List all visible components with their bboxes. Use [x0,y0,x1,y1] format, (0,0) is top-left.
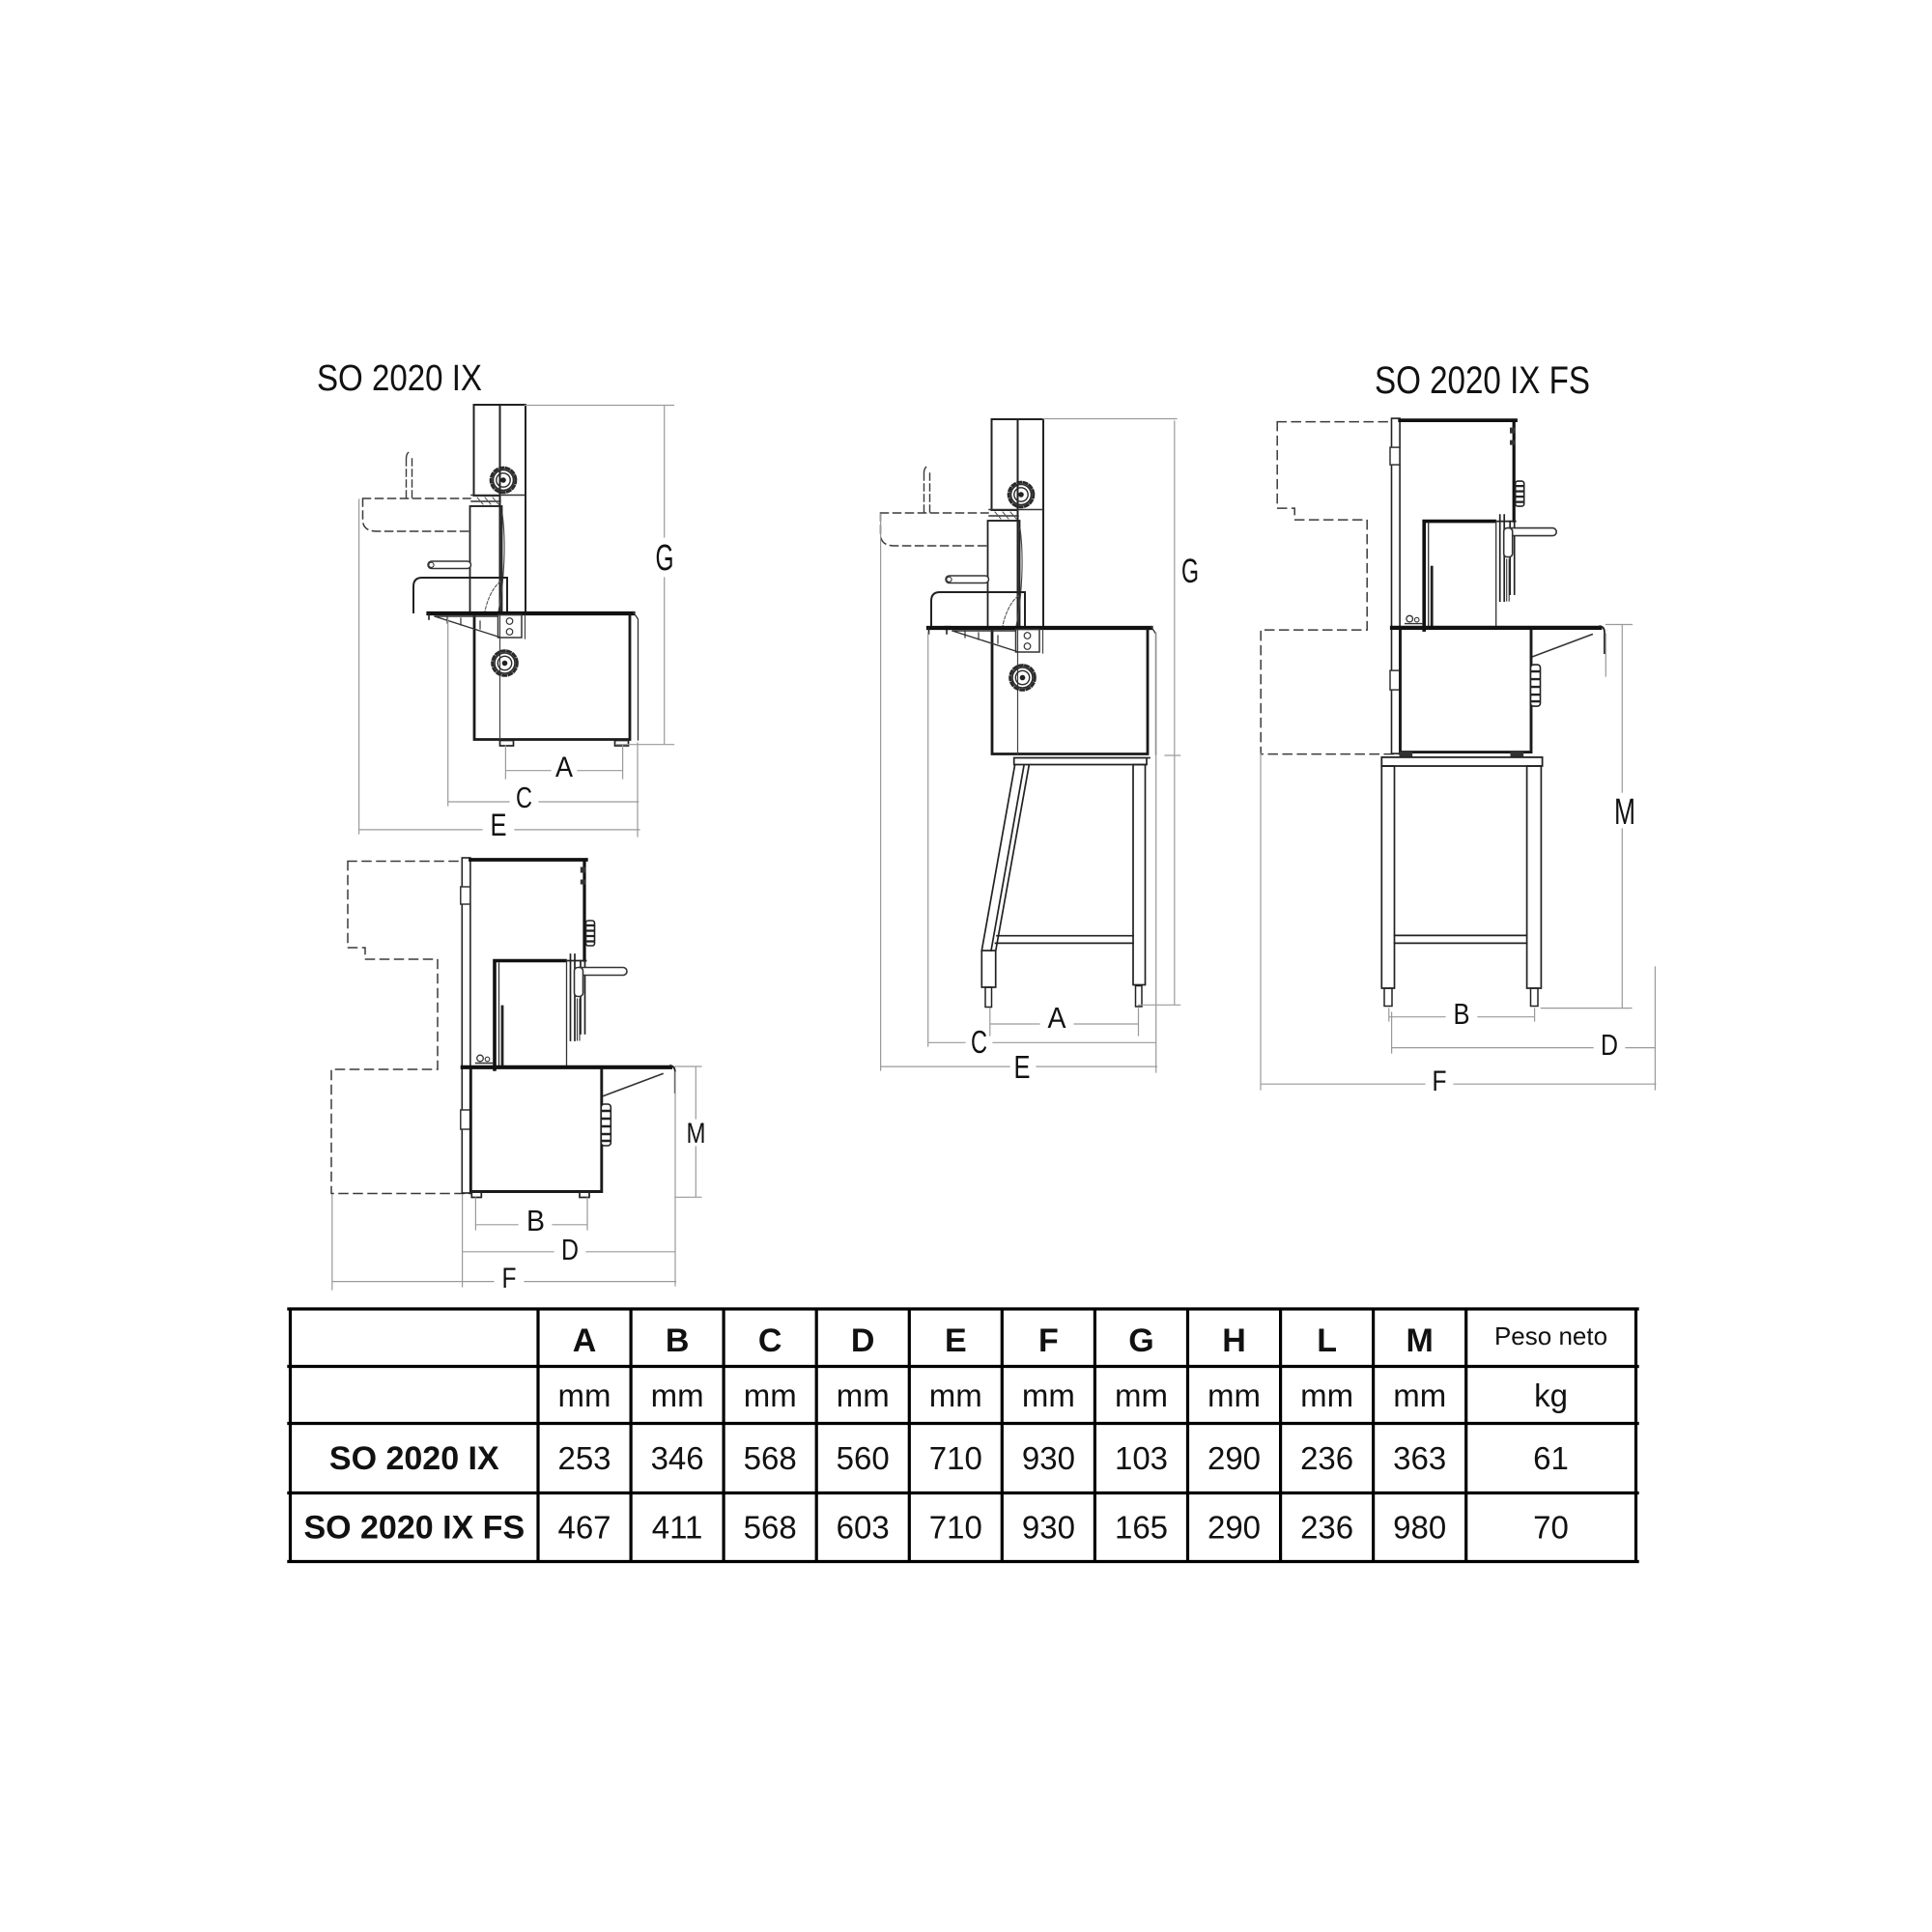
svg-text:70: 70 [1533,1510,1569,1546]
svg-text:SO 2020 IX: SO 2020 IX [317,358,482,399]
svg-text:mm: mm [1115,1378,1168,1413]
svg-text:568: 568 [744,1510,797,1546]
svg-text:560: 560 [837,1440,890,1476]
svg-text:236: 236 [1300,1510,1353,1546]
svg-text:103: 103 [1115,1440,1168,1476]
svg-text:930: 930 [1022,1510,1075,1546]
svg-text:mm: mm [1393,1378,1446,1413]
svg-text:mm: mm [1022,1378,1075,1413]
svg-text:603: 603 [837,1510,890,1546]
svg-text:363: 363 [1393,1440,1446,1476]
svg-text:mm: mm [837,1378,890,1413]
svg-text:mm: mm [744,1378,797,1413]
svg-text:D: D [561,1233,579,1266]
svg-text:A: A [1048,1001,1066,1035]
svg-text:930: 930 [1022,1440,1075,1476]
svg-text:E: E [945,1322,967,1359]
svg-text:SO 2020 IX: SO 2020 IX [329,1440,499,1477]
svg-text:L: L [1317,1322,1337,1359]
svg-text:mm: mm [929,1378,982,1413]
svg-text:290: 290 [1207,1510,1261,1546]
svg-text:G: G [1128,1322,1153,1359]
svg-text:568: 568 [744,1440,797,1476]
svg-text:mm: mm [558,1378,611,1413]
svg-text:D: D [1601,1028,1618,1062]
svg-text:M: M [1614,792,1635,833]
svg-text:B: B [1454,997,1470,1031]
svg-text:C: C [758,1322,782,1359]
svg-text:236: 236 [1300,1440,1353,1476]
svg-text:E: E [491,808,507,842]
svg-text:346: 346 [651,1440,704,1476]
svg-text:C: C [516,781,532,814]
svg-text:467: 467 [557,1510,611,1546]
svg-text:mm: mm [1300,1378,1353,1413]
svg-text:61: 61 [1533,1440,1569,1476]
svg-text:411: 411 [652,1510,703,1546]
svg-text:Peso neto: Peso neto [1494,1321,1607,1350]
svg-text:mm: mm [1207,1378,1261,1413]
svg-text:SO 2020 IX FS: SO 2020 IX FS [1375,359,1590,402]
svg-text:B: B [526,1204,545,1237]
svg-text:mm: mm [651,1378,704,1413]
svg-text:980: 980 [1393,1510,1446,1546]
svg-text:710: 710 [929,1510,982,1546]
svg-text:F: F [1038,1322,1059,1359]
svg-text:E: E [1014,1049,1031,1085]
svg-text:kg: kg [1534,1378,1568,1413]
svg-text:B: B [666,1322,690,1359]
svg-text:C: C [971,1024,987,1060]
svg-text:G: G [1181,553,1199,590]
svg-text:H: H [1222,1322,1246,1359]
svg-text:165: 165 [1115,1510,1168,1546]
svg-text:G: G [656,538,674,579]
svg-text:F: F [502,1263,517,1294]
svg-text:SO 2020 IX FS: SO 2020 IX FS [303,1510,525,1547]
svg-text:D: D [851,1322,875,1359]
svg-text:A: A [573,1322,597,1359]
svg-text:253: 253 [557,1440,611,1476]
svg-text:F: F [1433,1065,1447,1097]
svg-text:290: 290 [1207,1440,1261,1476]
svg-text:A: A [555,752,573,783]
svg-text:710: 710 [929,1440,982,1476]
svg-text:M: M [687,1118,706,1150]
svg-text:M: M [1406,1322,1434,1359]
